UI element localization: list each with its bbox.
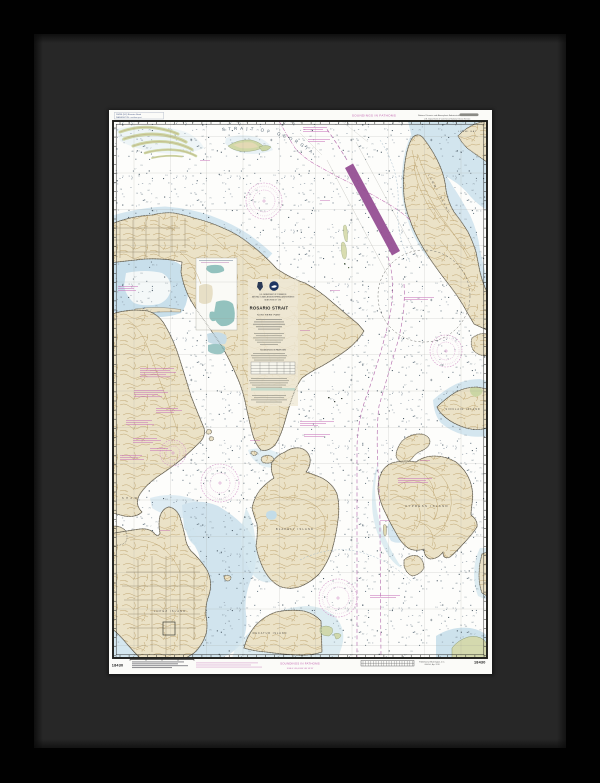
svg-text:ROSARIO STRAIT: ROSARIO STRAIT: [250, 306, 289, 311]
svg-text:18430: 18430: [112, 663, 124, 667]
svg-text:NORTHERN PART: NORTHERN PART: [257, 313, 281, 316]
svg-text:BLAKELY ISLAND: BLAKELY ISLAND: [276, 527, 314, 531]
svg-text:LUMMI BAY: LUMMI BAY: [458, 130, 477, 133]
svg-text:Published at Washington, D.C.: Published at Washington, D.C.: [419, 660, 445, 663]
svg-text:CYPRESS ISLAND: CYPRESS ISLAND: [405, 504, 449, 508]
svg-text:SCALE 1:80,000 AT LAT 48°38': SCALE 1:80,000 AT LAT 48°38': [287, 667, 314, 670]
svg-text:U.S. Department of Commerce N: U.S. Department of Commerce National Oce…: [424, 118, 470, 121]
svg-text:SOUNDINGS IN FATHOMS: SOUNDINGS IN FATHOMS: [260, 349, 286, 352]
svg-text:LOPEZ ISLAND: LOPEZ ISLAND: [154, 609, 186, 613]
svg-text:44th Ed., Apr. 2016: 44th Ed., Apr. 2016: [424, 663, 439, 666]
svg-text:WASHINGTON: WASHINGTON: [265, 299, 282, 302]
svg-text:S H A W: S H A W: [122, 497, 138, 500]
svg-text:DECATUR ISLAND: DECATUR ISLAND: [253, 632, 288, 635]
svg-text:National Oceanic and Atmospher: National Oceanic and Atmospheric Adminis…: [418, 114, 462, 117]
svg-text:18430: 18430: [474, 660, 486, 664]
svg-text:18430 (SC) Rosario Strait: 18430 (SC) Rosario Strait: [116, 113, 141, 116]
svg-text:SOUNDINGS IN FATHOMS: SOUNDINGS IN FATHOMS: [352, 114, 396, 118]
svg-text:SINCLAIR ISLAND: SINCLAIR ISLAND: [445, 408, 480, 411]
svg-text:WASHINGTON - northern part: WASHINGTON - northern part: [116, 116, 142, 119]
svg-text:SOUNDINGS IN FATHOMS: SOUNDINGS IN FATHOMS: [280, 662, 320, 666]
